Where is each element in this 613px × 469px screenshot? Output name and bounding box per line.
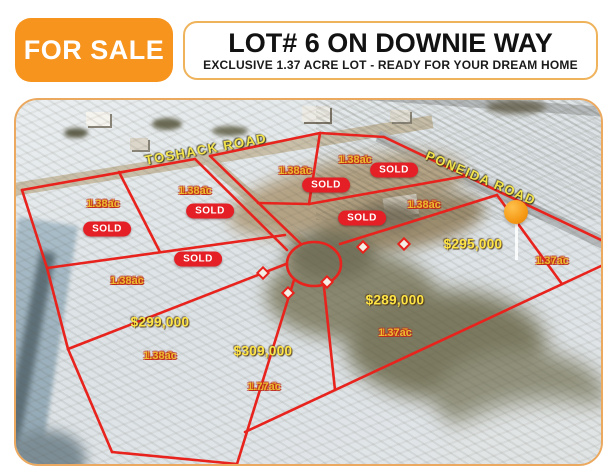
for-sale-label: FOR SALE bbox=[24, 35, 165, 66]
annotation-layer: Lot 11.38acSOLDLot 21.38acSOLDLot 31.38a… bbox=[16, 100, 601, 464]
sold-badge-lot-3: SOLD bbox=[302, 178, 350, 193]
pin-ball bbox=[504, 200, 528, 224]
lot-area: 1.38ac bbox=[178, 185, 212, 199]
price-label-lot-6: $295,000 bbox=[444, 237, 503, 252]
lot-area: 1.38ac bbox=[110, 275, 144, 289]
listing-title: LOT# 6 ON DOWNIE WAY bbox=[228, 29, 553, 57]
lot-area: 1.38ac bbox=[86, 198, 120, 212]
sold-badge-lot-1: SOLD bbox=[83, 222, 131, 237]
price-label-lot-9: $299,000 bbox=[131, 315, 190, 330]
lot-area: 1.38ac bbox=[143, 350, 177, 364]
lot-area: 1.38ac bbox=[278, 165, 312, 179]
lot-area: 1.38ac bbox=[338, 154, 372, 168]
sold-badge-lot-2: SOLD bbox=[186, 204, 234, 219]
lot-area: 1.37ac bbox=[378, 327, 412, 341]
price-label-lot-7: $289,000 bbox=[366, 293, 425, 308]
sold-badge-lot-4: SOLD bbox=[370, 163, 418, 178]
sold-badge-lot-5: SOLD bbox=[338, 211, 386, 226]
lot-area: 1.37ac bbox=[535, 255, 569, 269]
road-label-toshack-road: TOSHACK ROAD bbox=[144, 130, 269, 167]
flyer: FOR SALE LOT# 6 ON DOWNIE WAY EXCLUSIVE … bbox=[0, 0, 613, 469]
price-label-lot-8: $309,000 bbox=[234, 344, 293, 359]
lot-area: 1.38ac bbox=[407, 199, 441, 213]
pin-stem bbox=[515, 220, 518, 260]
aerial-photo: Lot 11.38acSOLDLot 21.38acSOLDLot 31.38a… bbox=[14, 98, 603, 466]
for-sale-badge: FOR SALE bbox=[15, 18, 173, 82]
sold-badge-lot-10: SOLD bbox=[174, 252, 222, 267]
listing-subtitle: EXCLUSIVE 1.37 ACRE LOT - READY FOR YOUR… bbox=[203, 58, 578, 72]
listing-title-box: LOT# 6 ON DOWNIE WAY EXCLUSIVE 1.37 ACRE… bbox=[183, 21, 598, 80]
lot-area: 1.77ac bbox=[247, 381, 281, 395]
